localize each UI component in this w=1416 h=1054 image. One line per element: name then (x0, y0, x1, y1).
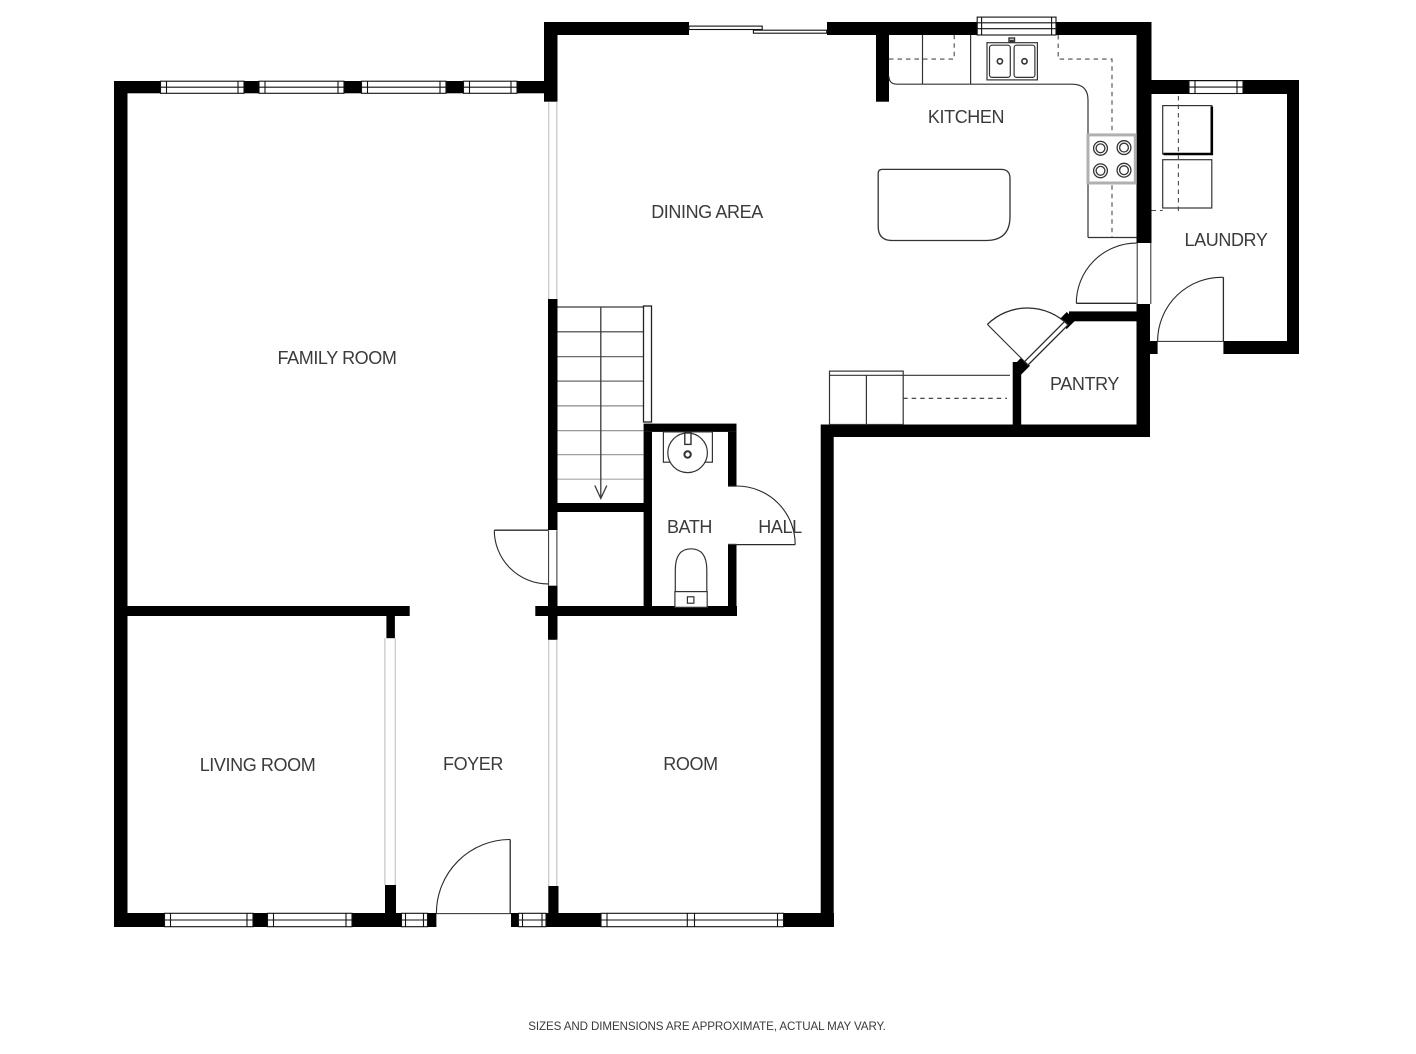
svg-text:HALL: HALL (758, 517, 802, 537)
svg-text:BATH: BATH (667, 517, 712, 537)
svg-text:ROOM: ROOM (663, 754, 717, 774)
svg-text:FAMILY ROOM: FAMILY ROOM (278, 348, 397, 368)
svg-text:PANTRY: PANTRY (1050, 374, 1119, 394)
svg-text:FOYER: FOYER (443, 754, 503, 774)
svg-text:DINING AREA: DINING AREA (651, 202, 763, 222)
svg-text:LAUNDRY: LAUNDRY (1185, 230, 1268, 250)
svg-text:KITCHEN: KITCHEN (928, 107, 1004, 127)
svg-text:LIVING ROOM: LIVING ROOM (200, 755, 316, 775)
svg-text:SIZES AND DIMENSIONS ARE APPRO: SIZES AND DIMENSIONS ARE APPROXIMATE, AC… (528, 1020, 886, 1033)
